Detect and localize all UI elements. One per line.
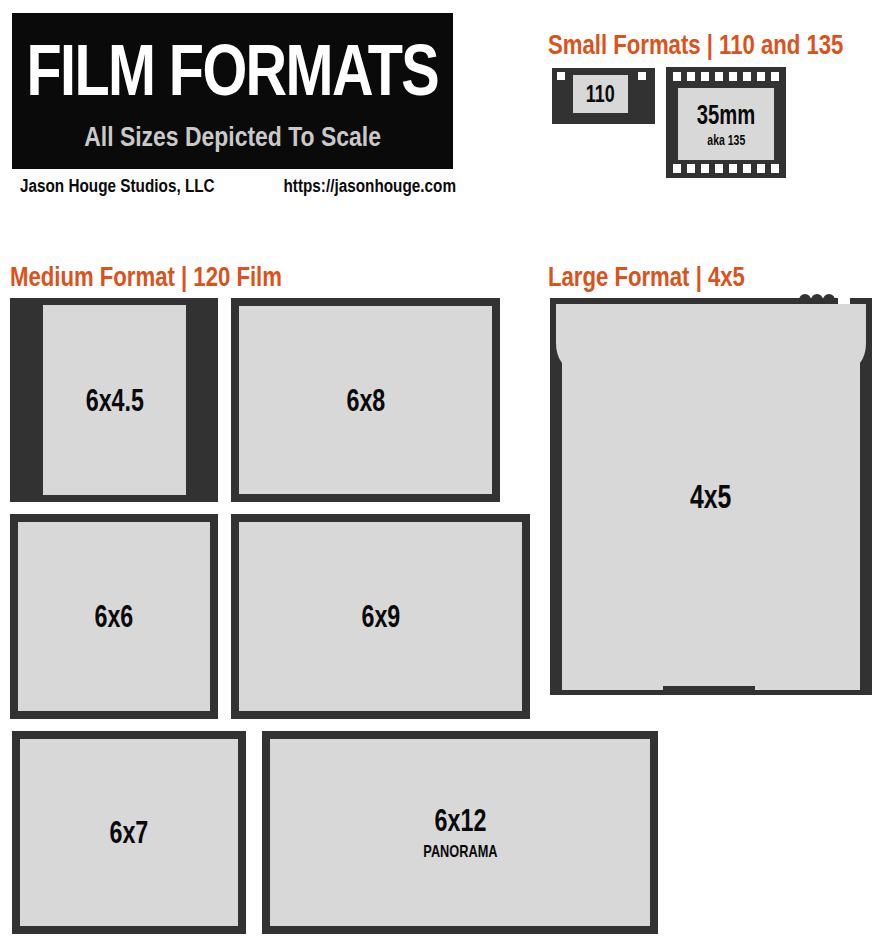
film-frame: 6x4.5 [43, 305, 186, 495]
header-box: FILM FORMATS All Sizes Depicted To Scale [12, 13, 453, 169]
sprocket-hole [757, 72, 765, 81]
perforation-hole [638, 72, 646, 80]
film-110-label: 110 [586, 82, 615, 106]
sprocket-hole [729, 164, 737, 173]
sprocket-hole [701, 164, 709, 173]
byline: Jason Houge Studios, LLC https://jasonho… [20, 176, 456, 197]
sprocket-hole [687, 72, 695, 81]
film-frame: 4x5 [550, 298, 872, 695]
heading-medium-format: Medium Format | 120 Film [10, 264, 282, 291]
sprocket-hole [715, 164, 723, 173]
format-box-6x6: 6x6 [10, 514, 218, 719]
format-label: 6x8 [346, 385, 385, 416]
format-label: 6x7 [110, 817, 149, 848]
sprocket-hole [729, 72, 737, 81]
format-label: 6x4.5 [85, 385, 143, 416]
page-title: FILM FORMATS [27, 34, 439, 106]
studio-name: Jason Houge Studios, LLC [20, 176, 215, 197]
page-subtitle: All Sizes Depicted To Scale [84, 124, 381, 151]
film-135-label: 35mm [697, 102, 756, 129]
format-label: 4x5 [690, 480, 731, 513]
format-box-6x4-5: 6x4.5 [10, 298, 218, 502]
film-135-frame: 35mm aka 135 [678, 88, 774, 160]
film-frame: 6x12 PANORAMA [270, 739, 650, 926]
sprocket-hole [743, 164, 751, 173]
format-box-4x5: 4x5 [550, 291, 872, 695]
sprocket-hole [673, 164, 681, 173]
heading-large-format: Large Format | 4x5 [548, 264, 745, 291]
sprocket-row-top [673, 72, 779, 81]
sprocket-hole [757, 164, 765, 173]
format-label: 6x9 [361, 601, 400, 632]
format-sublabel: PANORAMA [423, 843, 497, 860]
perforation-hole [557, 72, 565, 80]
film-135-icon: 35mm aka 135 [666, 67, 786, 178]
sprocket-hole [771, 164, 779, 173]
film-frame: 6x9 [239, 522, 522, 711]
film-frame: 6x7 [20, 739, 238, 926]
film-frame: 6x6 [18, 522, 210, 711]
film-110-icon: 110 [552, 68, 655, 124]
sprocket-hole [673, 72, 681, 81]
sprocket-hole [771, 72, 779, 81]
format-label: 6x6 [95, 601, 134, 632]
film-frame: 6x8 [239, 306, 492, 494]
heading-small-formats: Small Formats | 110 and 135 [548, 32, 843, 59]
film-110-frame: 110 [573, 75, 628, 113]
sprocket-hole [701, 72, 709, 81]
website-link[interactable]: https://jasonhouge.com [283, 176, 456, 197]
format-box-6x7: 6x7 [12, 731, 246, 934]
format-box-6x12: 6x12 PANORAMA [262, 731, 658, 934]
format-label: 6x12 [434, 805, 486, 836]
sprocket-hole [715, 72, 723, 81]
film-135-sublabel: aka 135 [707, 133, 745, 147]
sprocket-hole [687, 164, 695, 173]
film-formats-infographic: FILM FORMATS All Sizes Depicted To Scale… [0, 0, 881, 950]
sprocket-row-bottom [673, 164, 779, 173]
format-box-6x9: 6x9 [231, 514, 530, 719]
format-box-6x8: 6x8 [231, 298, 500, 502]
sprocket-hole [743, 72, 751, 81]
